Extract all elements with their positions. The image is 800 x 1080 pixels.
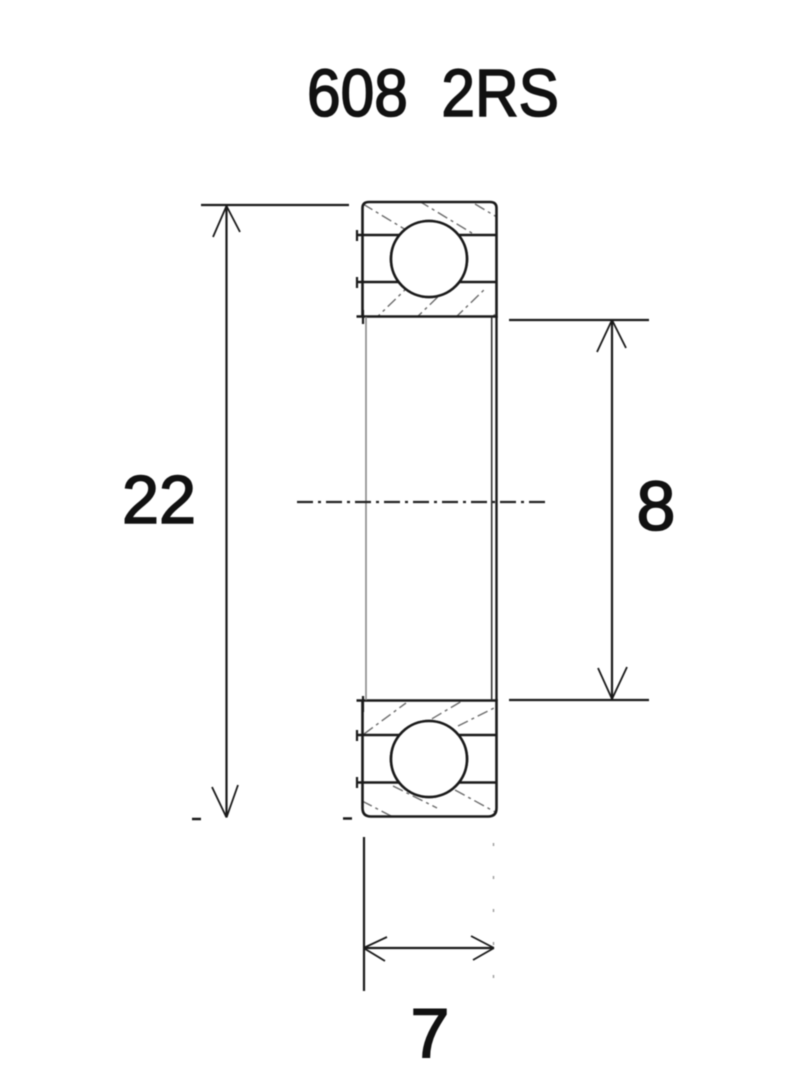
svg-text:608 2RS: 608 2RS: [307, 56, 559, 131]
svg-text:7: 7: [411, 994, 450, 1072]
svg-text:22: 22: [122, 462, 196, 538]
svg-text:8: 8: [637, 467, 676, 545]
